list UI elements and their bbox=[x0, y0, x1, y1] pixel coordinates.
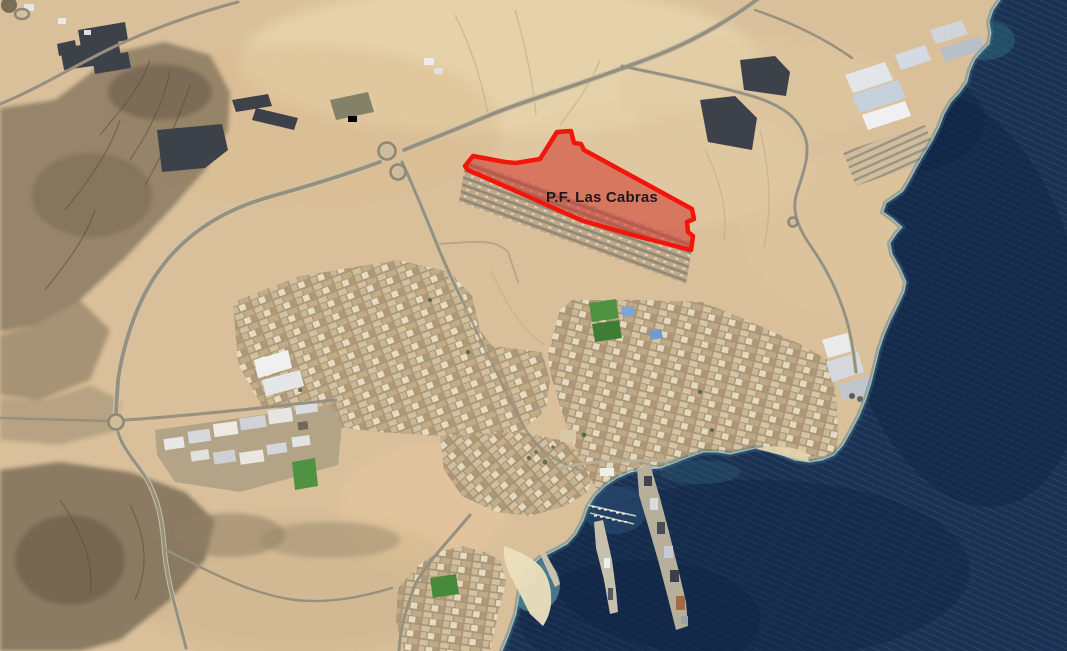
satellite-map-canvas: P.F. Las Cabras bbox=[0, 0, 1067, 651]
roundabout-north-b bbox=[391, 165, 406, 180]
roundabout-north-a bbox=[379, 143, 396, 160]
roundabout-west bbox=[109, 415, 124, 430]
satellite-map: P.F. Las Cabras bbox=[0, 0, 1067, 651]
project-area-label: P.F. Las Cabras bbox=[546, 189, 658, 206]
roundabout-coast bbox=[789, 218, 798, 227]
